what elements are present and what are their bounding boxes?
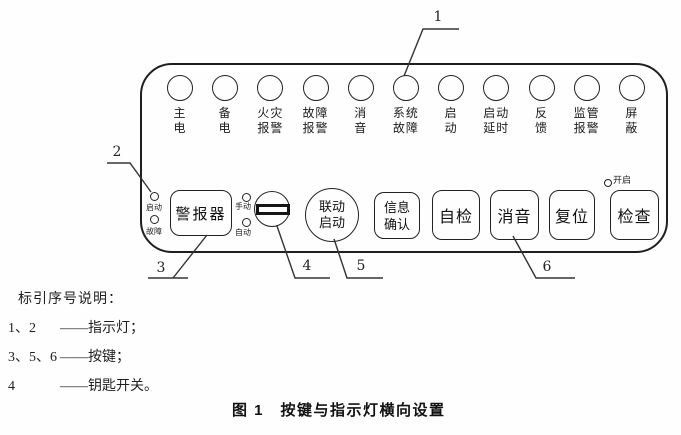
indicator-backup-power: 备 电 <box>203 75 247 136</box>
indicator-label: 火灾 报警 <box>248 106 292 136</box>
indicator-label: 故障 报警 <box>294 106 338 136</box>
indicator-label: 监管 报警 <box>565 106 609 136</box>
sounder-button: 警报器 <box>170 190 232 236</box>
check-open-led-label: 开启 <box>613 176 635 185</box>
indicator-label: 主 电 <box>158 106 202 136</box>
lamp-icon <box>167 75 193 101</box>
key-switch-slot-icon <box>256 204 290 215</box>
indicator-start-delay: 启动 延时 <box>474 75 518 136</box>
indicator-label-line: 反 <box>520 106 564 121</box>
indicator-label-line: 报警 <box>565 121 609 136</box>
callout-number-6: 6 <box>543 259 552 275</box>
callout-number-2: 2 <box>113 144 122 160</box>
lamp-icon <box>483 75 509 101</box>
legend-title: 标引序号说明： <box>18 288 338 308</box>
indicator-system-fault: 系统 故障 <box>384 75 428 136</box>
indicator-row: 主 电 备 电 火灾 报警 故障 <box>158 75 654 136</box>
reset-button: 复位 <box>549 190 595 240</box>
indicator-label-line: 备 <box>203 106 247 121</box>
indicator-label-line: 电 <box>203 121 247 136</box>
legend: 标引序号说明： 1、2——指示灯； 3、5、6——按键； 4——钥匙开关。 <box>8 288 338 404</box>
linkage-start-label-line: 启动 <box>319 215 345 231</box>
indicator-start: 启 动 <box>429 75 473 136</box>
mute-button: 消音 <box>490 190 539 240</box>
legend-item-desc: ——钥匙开关。 <box>60 379 158 394</box>
indicator-label-line: 故障 <box>294 106 338 121</box>
lamp-icon <box>574 75 600 101</box>
indicator-label-line: 故障 <box>384 121 428 136</box>
legend-item: 3、5、6——按键； <box>8 346 338 366</box>
sounder-start-led-icon <box>150 192 159 201</box>
indicator-label-line: 延时 <box>474 121 518 136</box>
legend-item-number: 1、2 <box>8 317 60 337</box>
callout-number-1: 1 <box>434 9 443 25</box>
legend-item-number: 3、5、6 <box>8 346 60 366</box>
indicator-label-line: 屏 <box>610 106 654 121</box>
sounder-start-led-label: 启动 <box>140 203 168 212</box>
indicator-label-line: 监管 <box>565 106 609 121</box>
indicator-label: 系统 故障 <box>384 106 428 136</box>
indicator-fire-alarm: 火灾 报警 <box>248 75 292 136</box>
indicator-label-line: 启动 <box>474 106 518 121</box>
indicator-label: 启 动 <box>429 106 473 136</box>
indicator-label-line: 启 <box>429 106 473 121</box>
indicator-label-line: 音 <box>339 121 383 136</box>
auto-led-icon <box>242 218 251 227</box>
legend-item-desc: ——指示灯； <box>60 321 144 336</box>
callout-number-3: 3 <box>157 260 166 276</box>
figure-canvas: 主 电 备 电 火灾 报警 故障 <box>0 0 681 435</box>
lamp-icon <box>393 75 419 101</box>
indicator-mute: 消 音 <box>339 75 383 136</box>
legend-item: 4——钥匙开关。 <box>8 375 338 395</box>
indicator-label-line: 动 <box>429 121 473 136</box>
legend-item-desc: ——按键； <box>60 350 130 365</box>
indicator-label-line: 电 <box>158 121 202 136</box>
lamp-icon <box>438 75 464 101</box>
callout-number-4: 4 <box>303 258 312 274</box>
indicator-fault-alarm: 故障 报警 <box>294 75 338 136</box>
sounder-fault-led-label: 故障 <box>140 227 168 236</box>
legend-item-number: 4 <box>8 379 60 395</box>
indicator-label: 启动 延时 <box>474 106 518 136</box>
indicator-label-line: 主 <box>158 106 202 121</box>
lamp-icon <box>257 75 283 101</box>
indicator-label: 消 音 <box>339 106 383 136</box>
info-confirm-label-line: 信息 <box>384 199 410 216</box>
indicator-feedback: 反 馈 <box>520 75 564 136</box>
lamp-icon <box>619 75 645 101</box>
lamp-icon <box>212 75 238 101</box>
indicator-label: 备 电 <box>203 106 247 136</box>
manual-led-label: 手动 <box>229 202 257 211</box>
indicator-label-line: 报警 <box>248 121 292 136</box>
lamp-icon <box>529 75 555 101</box>
indicator-label-line: 馈 <box>520 121 564 136</box>
indicator-label: 反 馈 <box>520 106 564 136</box>
indicator-label: 屏 蔽 <box>610 106 654 136</box>
indicator-shield: 屏 蔽 <box>610 75 654 136</box>
info-confirm-label-line: 确认 <box>384 216 410 233</box>
manual-led-icon <box>242 193 251 202</box>
indicator-label-line: 火灾 <box>248 106 292 121</box>
linkage-start-label-line: 联动 <box>319 199 345 215</box>
lamp-icon <box>303 75 329 101</box>
figure-caption: 图 1 按键与指示灯横向设置 <box>232 399 446 420</box>
indicator-label-line: 消 <box>339 106 383 121</box>
lamp-icon <box>348 75 374 101</box>
indicator-main-power: 主 电 <box>158 75 202 136</box>
callout-number-5: 5 <box>357 258 366 274</box>
auto-led-label: 自动 <box>229 228 257 237</box>
check-open-led-icon <box>604 179 612 187</box>
check-button: 检查 <box>610 190 659 240</box>
sounder-fault-led-icon <box>150 215 159 224</box>
control-panel: 主 电 备 电 火灾 报警 故障 <box>140 63 668 253</box>
legend-item: 1、2——指示灯； <box>8 317 338 337</box>
indicator-label-line: 系统 <box>384 106 428 121</box>
info-confirm-button: 信息 确认 <box>374 192 420 239</box>
self-test-button: 自检 <box>432 190 480 240</box>
indicator-supervisory-alarm: 监管 报警 <box>565 75 609 136</box>
linkage-start-button: 联动 启动 <box>305 188 359 242</box>
indicator-label-line: 报警 <box>294 121 338 136</box>
indicator-label-line: 蔽 <box>610 121 654 136</box>
